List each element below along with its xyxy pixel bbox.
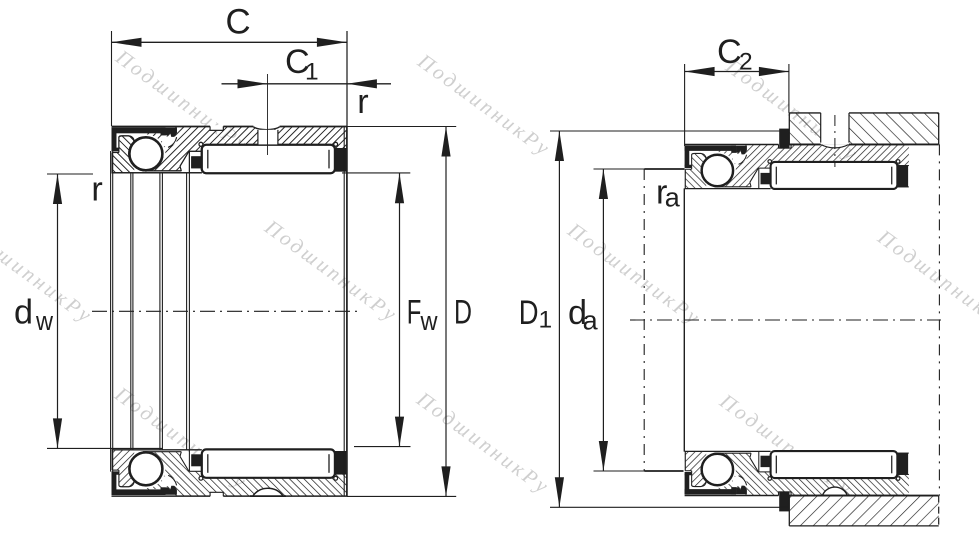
svg-text:a: a: [665, 183, 681, 213]
svg-text:ПодшипникРу: ПодшипникРу: [412, 386, 555, 499]
svg-text:ПодшипникРу: ПодшипникРу: [260, 214, 403, 327]
svg-text:C: C: [717, 33, 742, 71]
svg-text:D: D: [519, 294, 539, 332]
svg-text:D: D: [454, 294, 472, 332]
svg-text:1: 1: [539, 307, 553, 334]
svg-text:w: w: [35, 306, 53, 336]
svg-text:ПодшипникРу: ПодшипникРу: [873, 224, 979, 337]
svg-text:F: F: [407, 294, 422, 332]
svg-text:w: w: [420, 306, 438, 336]
svg-text:1: 1: [305, 58, 319, 85]
svg-text:d: d: [14, 294, 33, 332]
svg-text:C: C: [226, 3, 251, 42]
svg-text:r: r: [91, 171, 102, 209]
svg-text:r: r: [357, 83, 368, 121]
svg-text:ПодшипникРу: ПодшипникРу: [413, 48, 556, 161]
svg-text:a: a: [583, 305, 599, 335]
svg-text:2: 2: [739, 49, 753, 76]
